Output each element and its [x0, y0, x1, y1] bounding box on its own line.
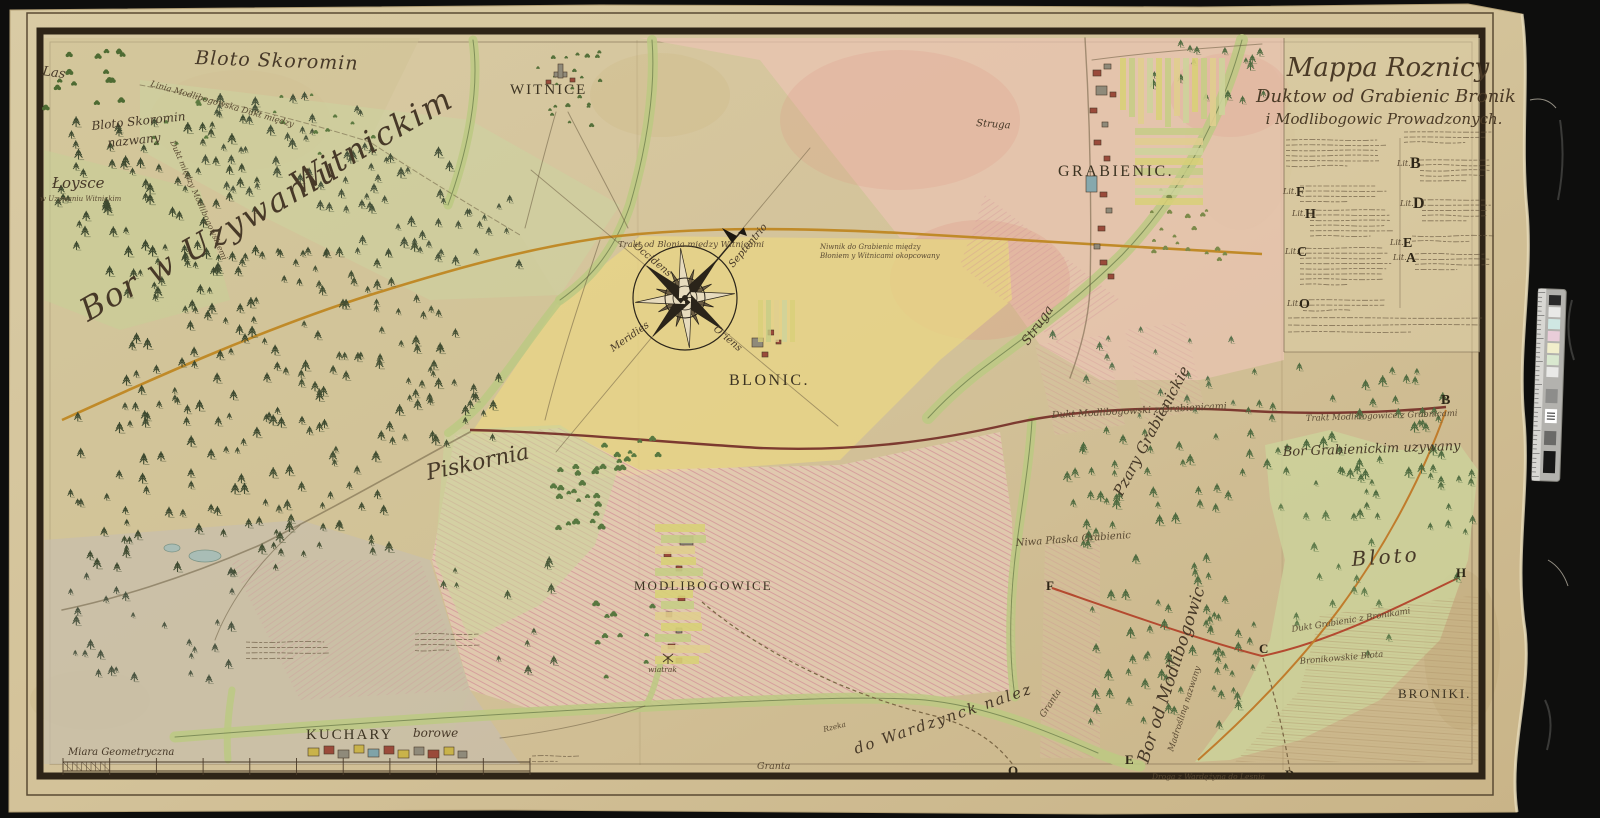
building: [324, 746, 334, 754]
legend-letter-c: C: [1297, 245, 1307, 260]
building: [384, 746, 394, 754]
label-loysce-sub: w Uzywaniu Witnickim: [40, 195, 122, 203]
field-strip: [1135, 188, 1203, 195]
field-strip: [1138, 58, 1144, 124]
building: [1093, 70, 1101, 76]
label-niwnik-2: Błoniem y Witnicami okopcowany: [819, 252, 941, 260]
building: [1102, 122, 1108, 127]
field-strip: [782, 300, 787, 342]
label-broniki: BRONIKI.: [1398, 686, 1471, 701]
village-plot: [655, 546, 695, 554]
building: [1100, 260, 1107, 265]
field-strip: [1129, 58, 1135, 117]
village-plot: [661, 557, 696, 565]
lit-prefix: Lit.: [1291, 209, 1306, 218]
field-strip: [766, 300, 771, 342]
legend-letter-b: B: [1410, 155, 1421, 172]
letter-c: C: [1259, 641, 1268, 656]
village-plot: [661, 645, 710, 653]
village-plot: [655, 568, 703, 576]
field-strip: [1135, 128, 1203, 135]
label-witnice: WITNICE: [510, 82, 587, 98]
legend-letter-e: E: [1403, 236, 1412, 251]
field-strip: [1201, 58, 1207, 119]
village-plot: [655, 656, 699, 664]
letter-h: H: [1456, 565, 1466, 580]
lit-prefix: Lit.: [1392, 253, 1407, 262]
building: [414, 747, 424, 755]
small-pond: [164, 544, 180, 552]
building: [1090, 108, 1097, 113]
southeast-hatch: [1040, 540, 1100, 758]
building: [368, 749, 379, 757]
field-strip: [1210, 58, 1216, 126]
building: [1098, 226, 1105, 231]
building: [1110, 92, 1116, 97]
field-strip: [1147, 58, 1153, 113]
building: [428, 750, 439, 758]
legend-letter-o: O: [1299, 297, 1310, 312]
field-strip: [1120, 58, 1126, 110]
label-droga-wardezyna: Droga z Wardężyna do Lesnia: [1151, 772, 1265, 781]
label-granta-1: Granta: [757, 761, 791, 772]
building: [1104, 64, 1111, 69]
label-blonic: BLONIC.: [729, 372, 810, 389]
building: [1108, 274, 1114, 279]
label-kuchary: KUCHARY: [306, 727, 393, 743]
lit-prefix: Lit.: [1399, 199, 1414, 208]
legend-letter-h: H: [1305, 207, 1316, 222]
legend-letter-d: D: [1413, 195, 1425, 212]
building: [1094, 244, 1100, 249]
letter-e: E: [1125, 752, 1134, 767]
pond: [189, 550, 221, 562]
field-strip: [1135, 198, 1203, 205]
village-plot: [655, 634, 691, 642]
letter-b: B: [1441, 393, 1450, 408]
scale-label: Miara Geometryczna: [67, 747, 174, 758]
label-bloto-east: Bloto: [1350, 542, 1421, 571]
lit-prefix: Lit.: [1389, 238, 1404, 247]
village-plot: [661, 623, 702, 631]
building: [1100, 192, 1107, 197]
building: [354, 745, 364, 753]
label-loysce: Łoysce: [51, 174, 105, 192]
label-wiatrak: wiatrak: [648, 665, 677, 674]
field-strip: [1183, 58, 1189, 123]
village-plot: [655, 524, 705, 532]
label-modlibogowice: MODLIBOGOWICE: [634, 578, 773, 593]
label-grabienic: GRABIENIC.: [1058, 163, 1174, 180]
photographed-map: Septentrio Occidens Meridies Oriens Las …: [0, 0, 1600, 818]
label-kuchary-suffix: borowe: [413, 726, 458, 740]
field-strip: [1192, 58, 1198, 112]
building: [558, 64, 563, 78]
building: [762, 352, 768, 357]
label-niwnik-1: Niwnik do Grabienic między: [819, 243, 922, 251]
field-strip: [758, 300, 763, 342]
letter-d: D: [1285, 767, 1294, 782]
title-cartouche: Mappa Roznicy Duktow od Grabienic Bronik…: [1255, 38, 1516, 352]
building: [398, 750, 409, 758]
cartouche-title-1: Mappa Roznicy: [1286, 53, 1490, 83]
field-strip: [790, 300, 795, 342]
building: [444, 747, 454, 755]
village-plot: [661, 535, 706, 543]
village-plot: [655, 612, 701, 620]
field-strip: [1156, 58, 1162, 120]
field-strip: [1219, 58, 1225, 115]
building: [1104, 156, 1110, 161]
field-strip: [1135, 148, 1203, 155]
calibration-strip: [1532, 289, 1567, 482]
field-strip: [774, 300, 779, 342]
cartouche-title-2: Duktow od Grabienic Bronik: [1255, 86, 1516, 107]
map-image: Septentrio Occidens Meridies Oriens Las …: [0, 0, 1600, 818]
field-strip: [1165, 58, 1171, 127]
field-strip: [1174, 58, 1180, 116]
letter-o: O.: [1008, 763, 1021, 778]
field-strip: [1135, 138, 1203, 145]
village-plot: [661, 601, 694, 609]
building: [1094, 140, 1101, 145]
building: [308, 748, 319, 756]
letter-f: F: [1046, 578, 1054, 593]
building: [1096, 86, 1107, 95]
cartouche-title-3: i Modlibogowic Prowadzonych.: [1266, 110, 1503, 128]
building: [338, 750, 349, 758]
lit-prefix: Lit.: [1282, 187, 1297, 196]
building: [1106, 208, 1112, 213]
label-trakt-blonia: Trakt od Blonia między Witnicami: [618, 240, 764, 250]
legend-letter-f: F: [1296, 185, 1305, 200]
lit-prefix: Lit.: [1396, 159, 1411, 168]
building: [458, 751, 467, 758]
legend-letter-a: A: [1406, 251, 1417, 266]
